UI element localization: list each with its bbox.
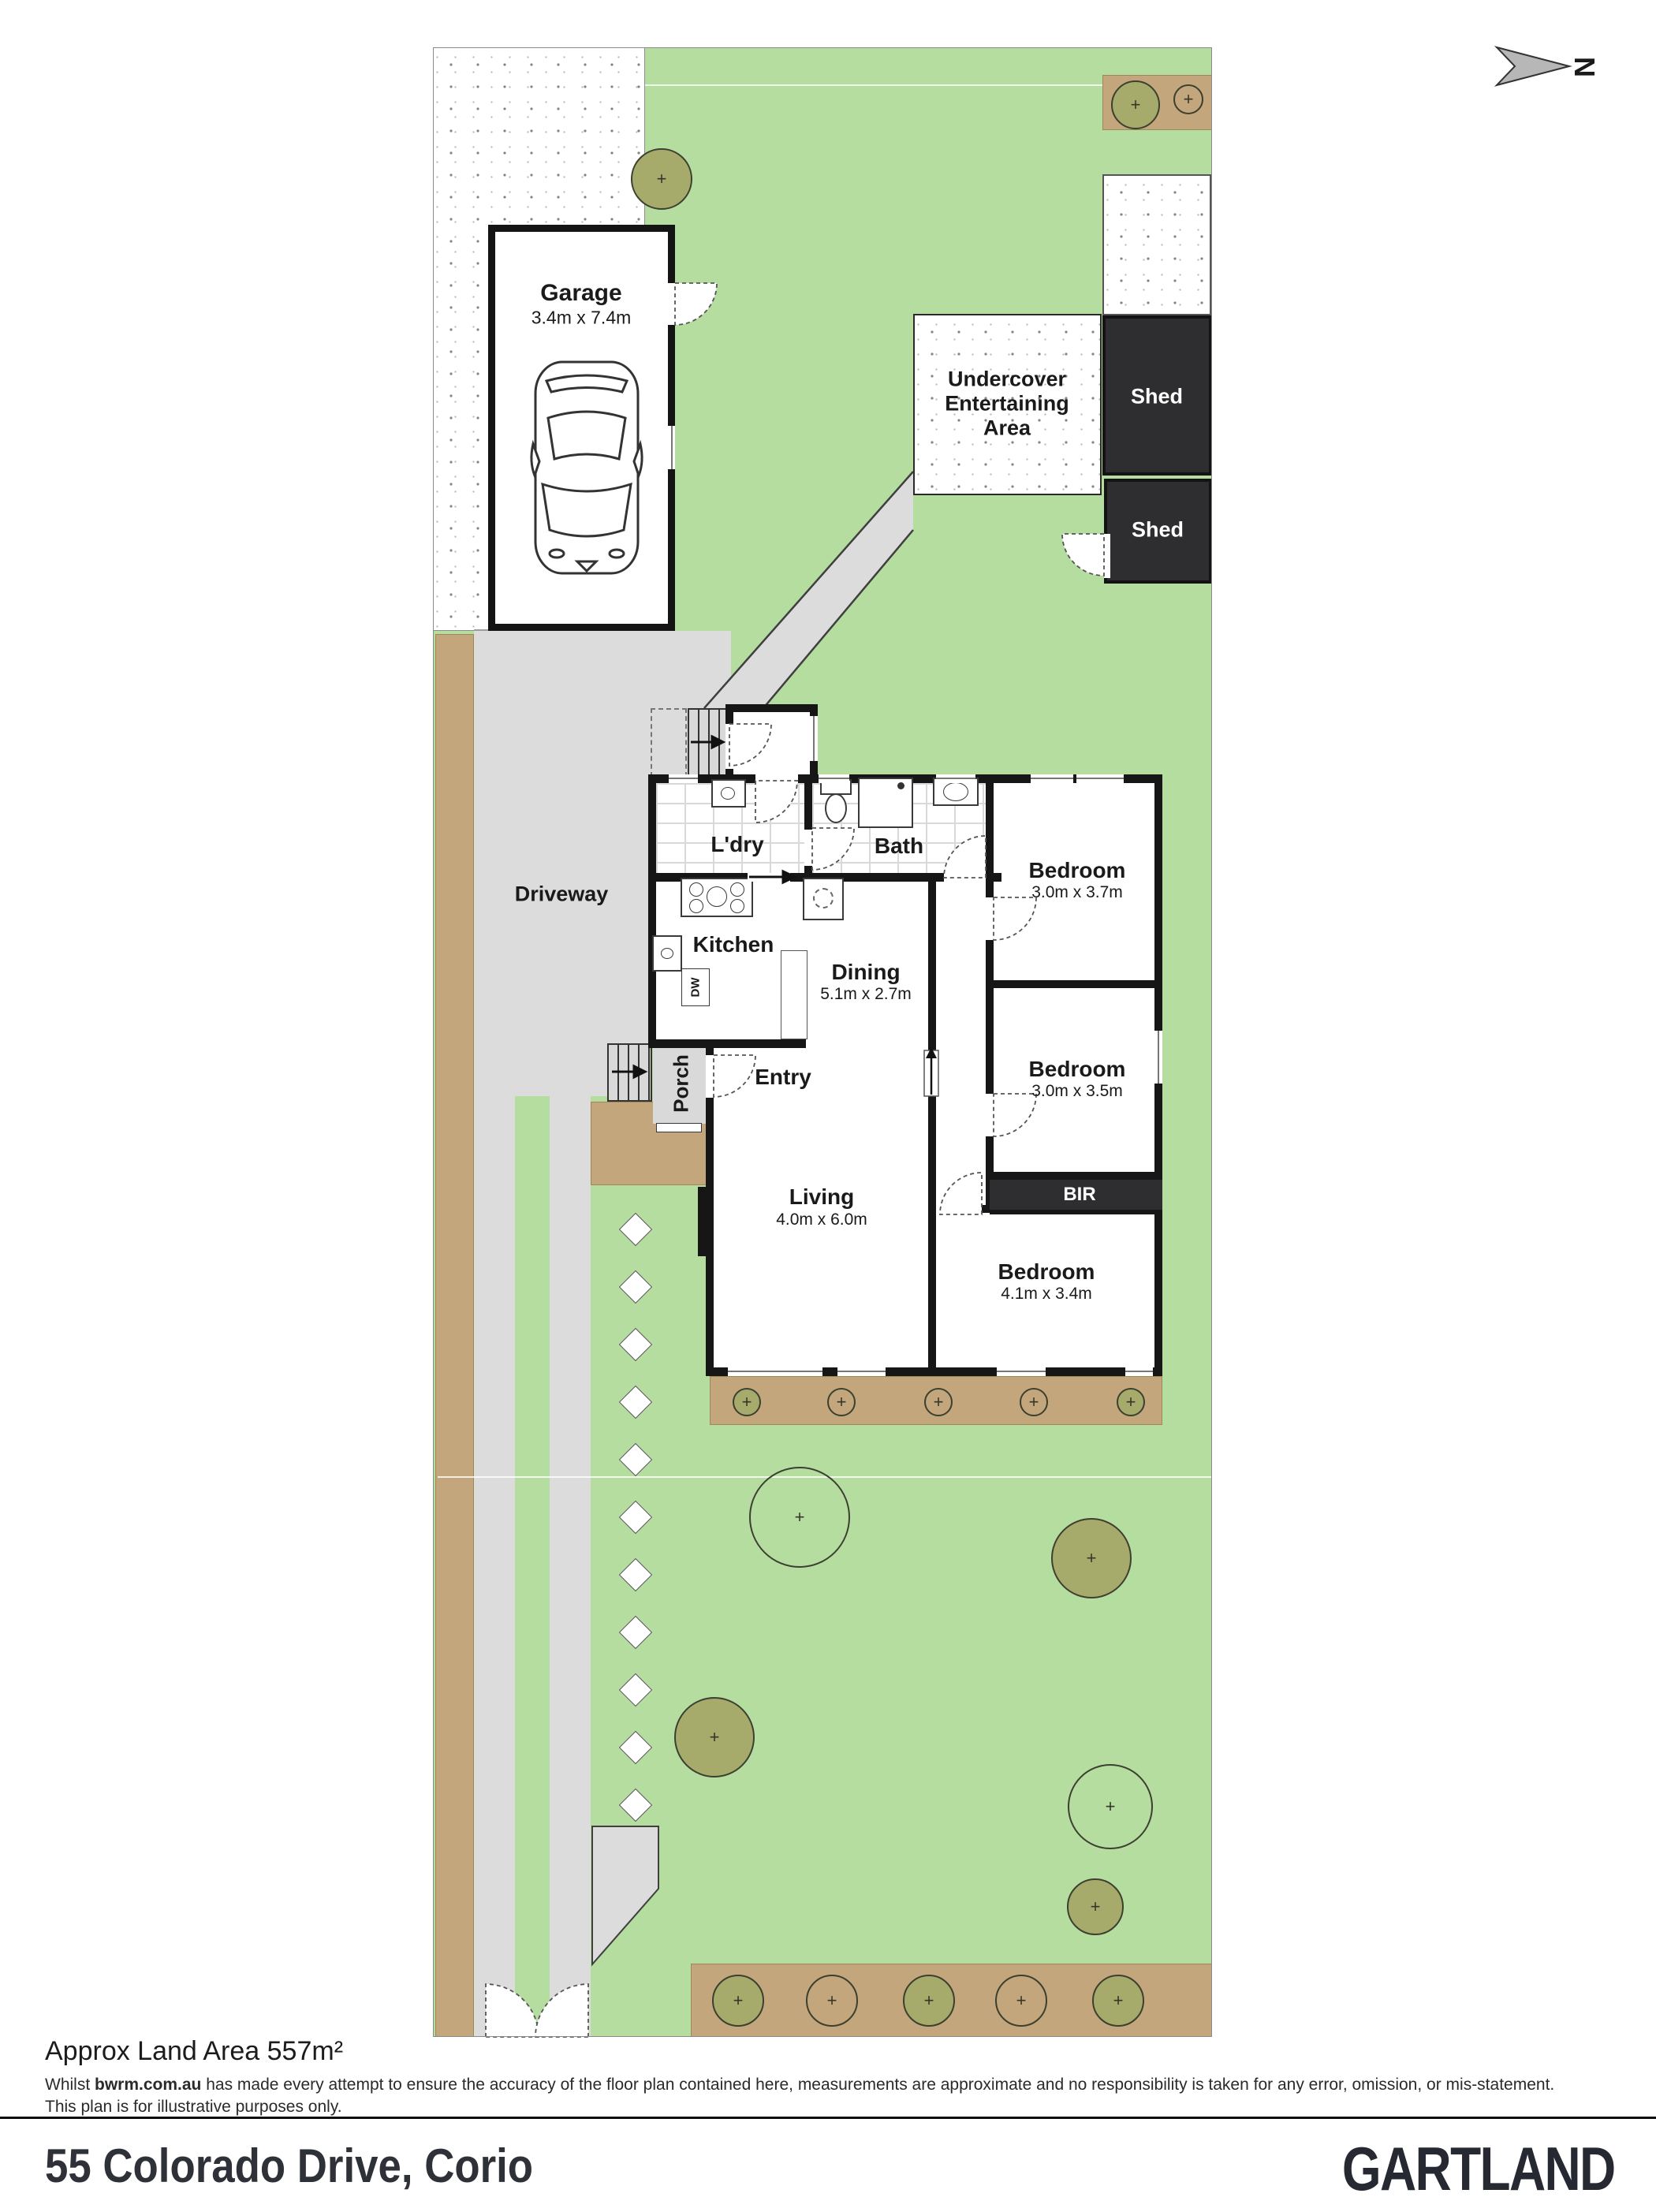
bedroom3-dims: 4.1m x 3.4m: [1001, 1285, 1092, 1304]
driveway-label: Driveway: [515, 882, 609, 907]
bedroom2-dims: 3.0m x 3.5m: [1031, 1082, 1123, 1101]
north-arrow-icon: [1497, 47, 1569, 85]
bedroom3-label: Bedroom: [998, 1259, 1095, 1285]
uea-label-1: Undercover: [948, 367, 1066, 392]
bedroom1-label: Bedroom: [1029, 858, 1126, 883]
shed-bottom-label: Shed: [1132, 518, 1184, 543]
garage-label: Garage: [540, 280, 621, 307]
shed-top-label: Shed: [1131, 385, 1183, 409]
dining-dims: 5.1m x 2.7m: [820, 985, 912, 1004]
laundry-label: L'dry: [711, 832, 763, 857]
bir-label: BIR: [1063, 1184, 1095, 1206]
porch-label: Porch: [669, 1054, 694, 1113]
uea-label-2: Entertaining: [945, 392, 1069, 416]
dishwasher-label: DW: [689, 978, 703, 998]
dining-label: Dining: [831, 960, 900, 985]
north-label: N: [1568, 57, 1601, 77]
north-arrow-layer: [0, 0, 1656, 2212]
bath-label: Bath: [875, 834, 923, 859]
kitchen-label: Kitchen: [693, 932, 774, 957]
living-label: Living: [789, 1184, 854, 1210]
bedroom1-dims: 3.0m x 3.7m: [1031, 883, 1123, 902]
garage-dims: 3.4m x 7.4m: [531, 308, 632, 329]
bedroom2-label: Bedroom: [1029, 1057, 1126, 1082]
entry-label: Entry: [755, 1065, 811, 1090]
uea-label-3: Area: [983, 416, 1031, 441]
living-dims: 4.0m x 6.0m: [776, 1210, 867, 1229]
